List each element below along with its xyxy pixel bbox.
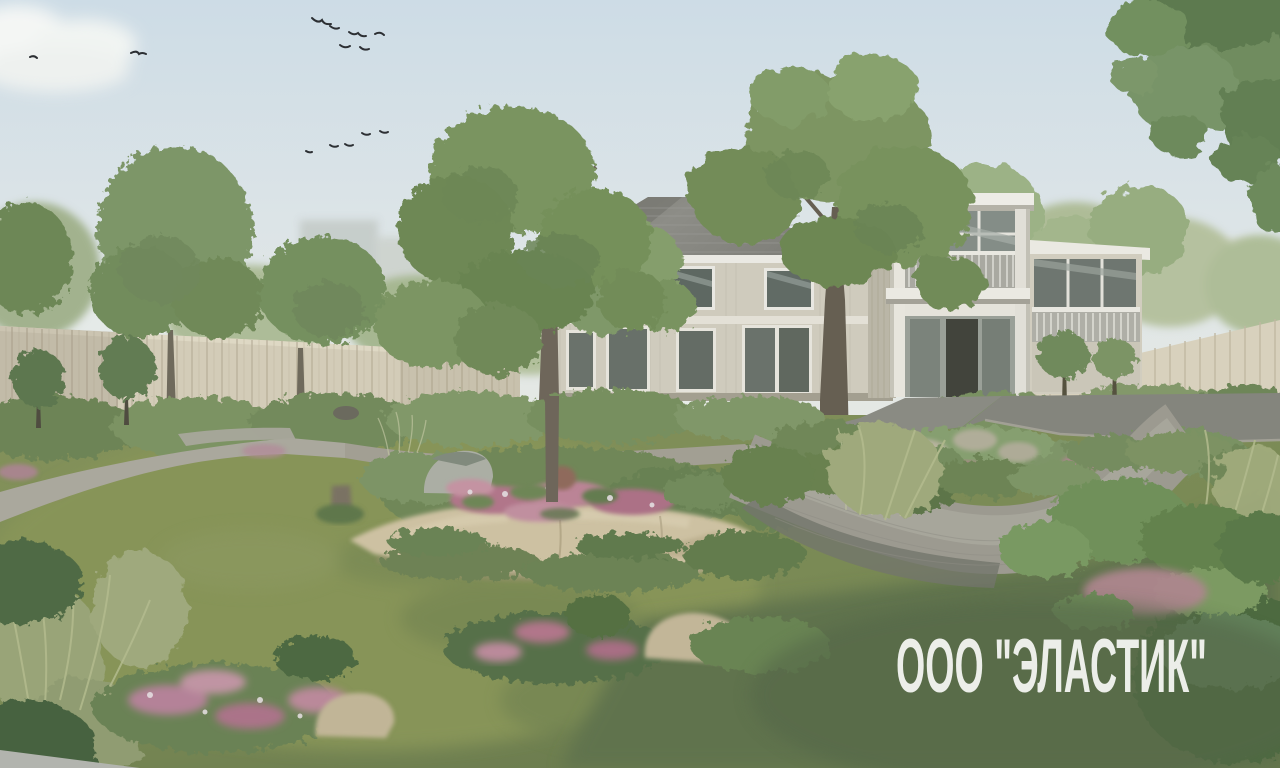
svg-text:ООО "ЭЛАСТИК": ООО "ЭЛАСТИК" <box>896 624 1207 709</box>
